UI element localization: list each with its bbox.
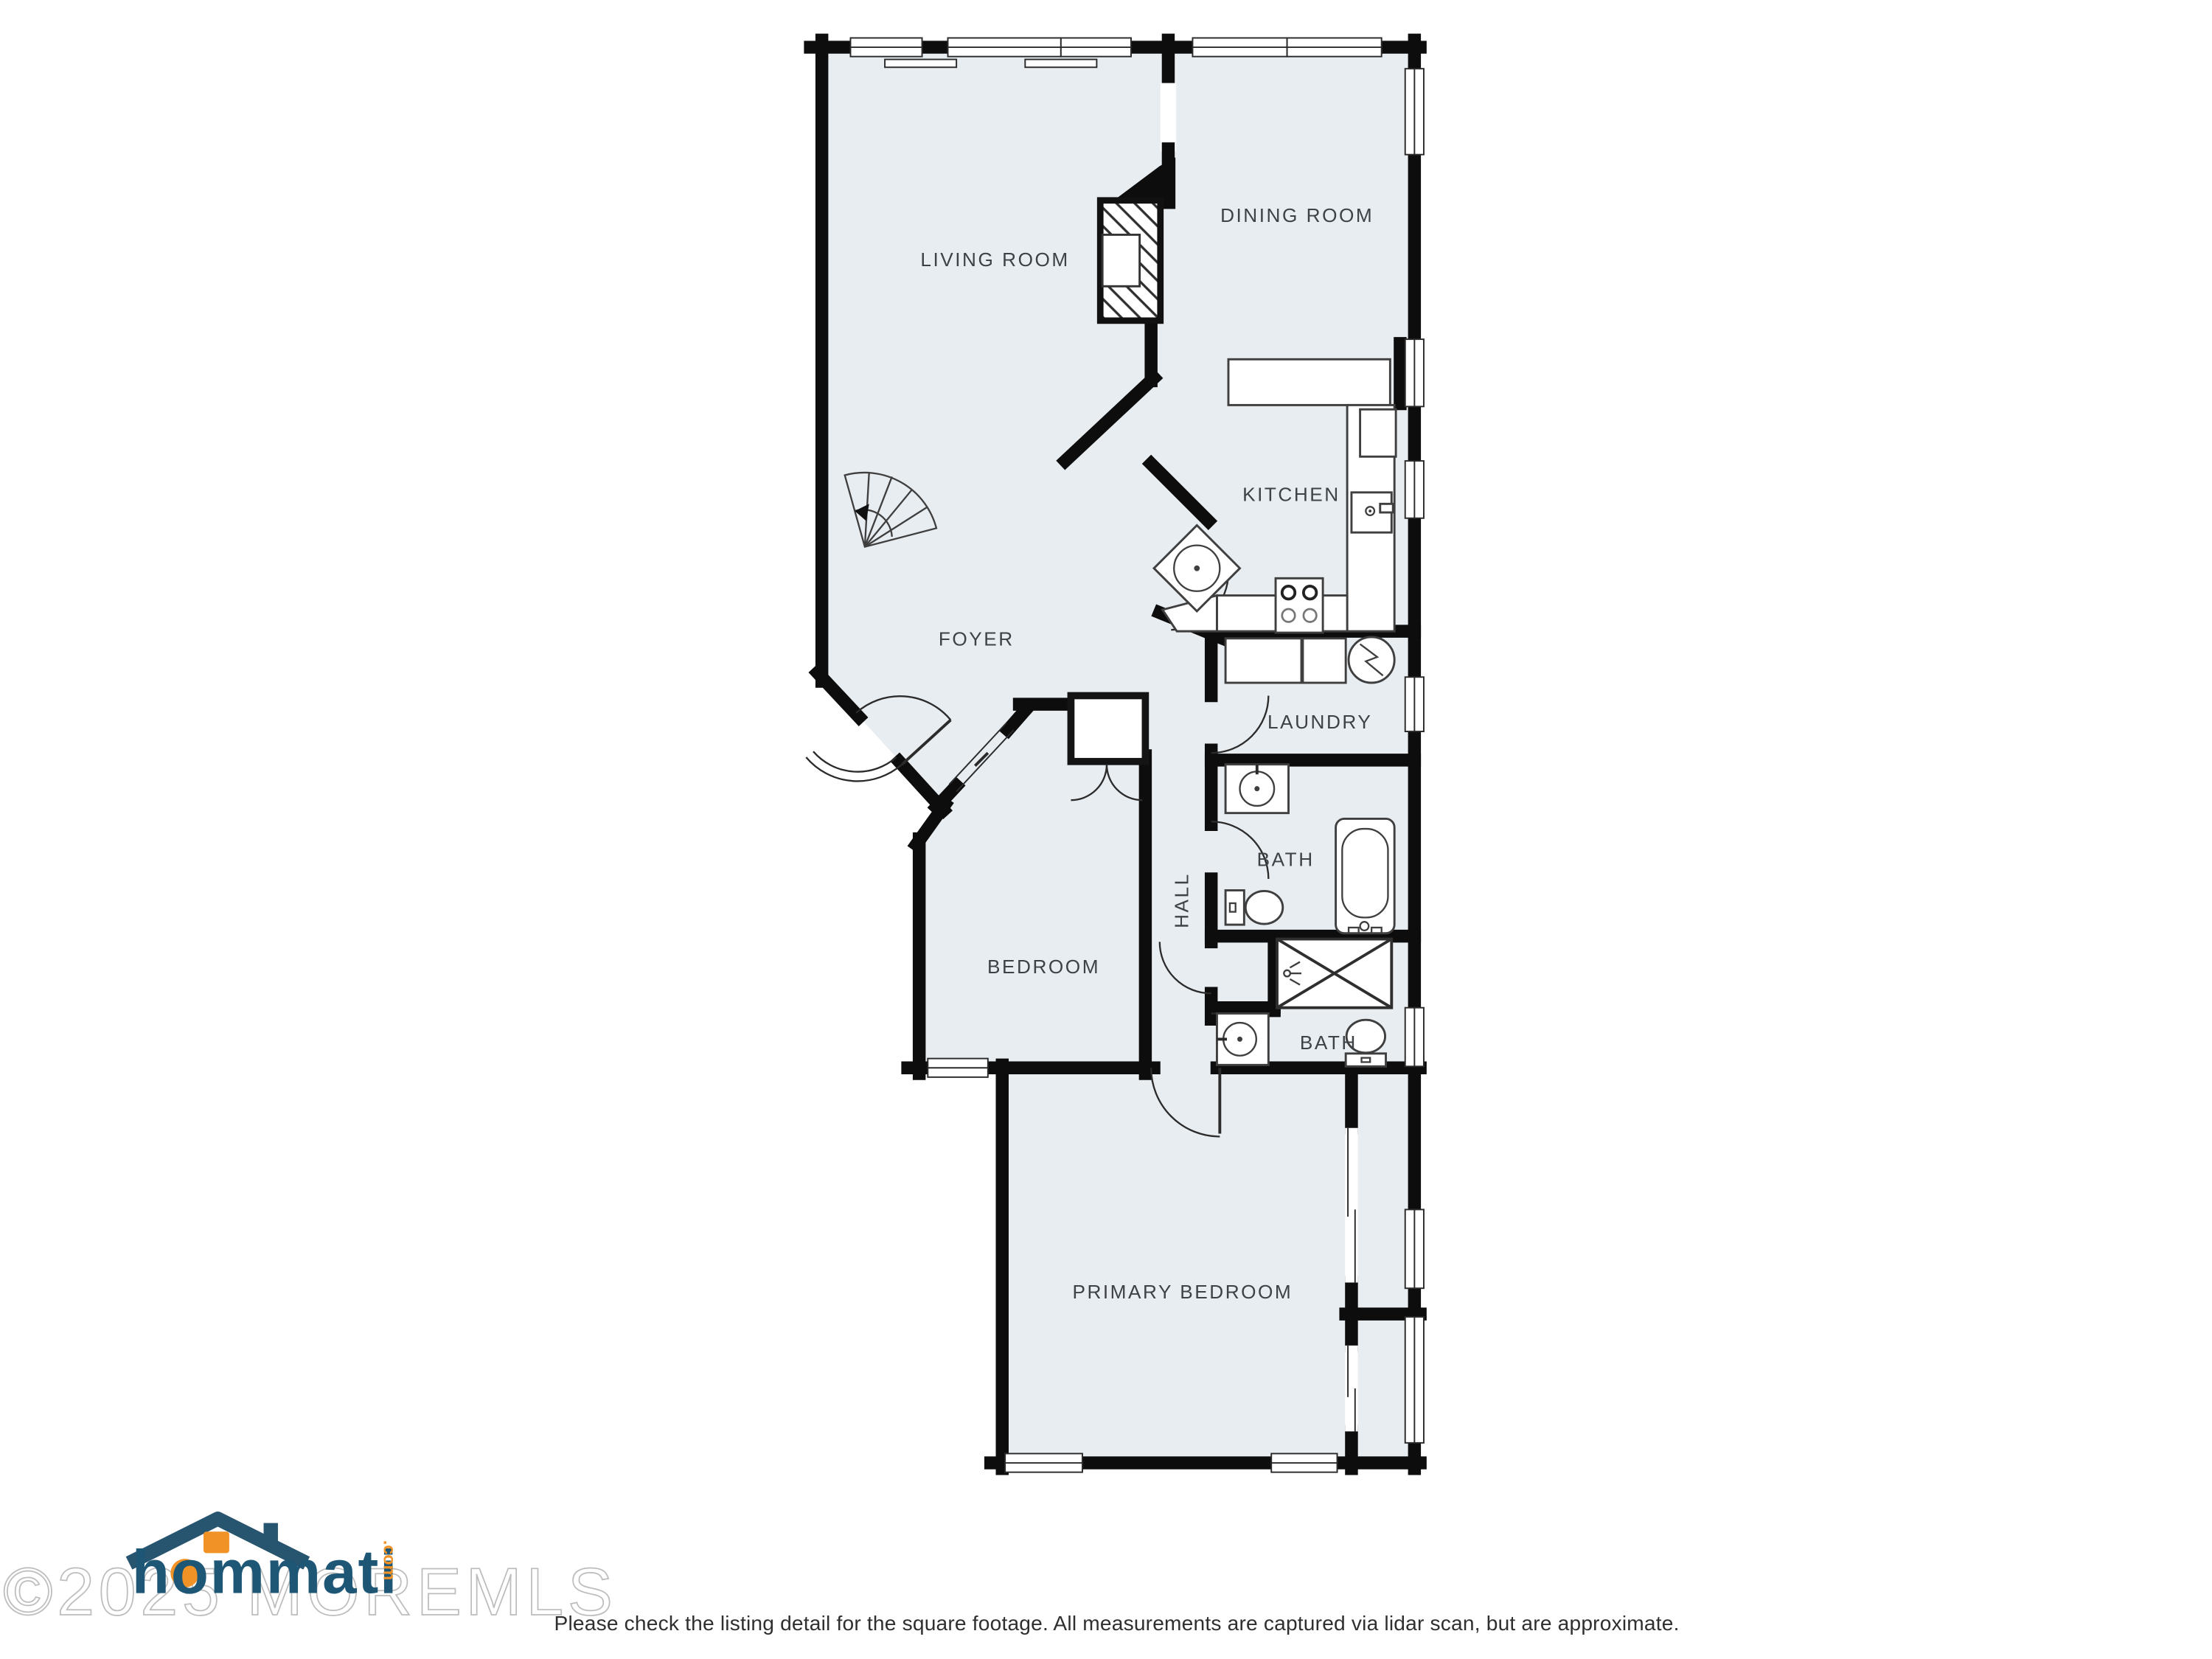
floor-plan: LIVING ROOM DINING ROOM KITCHEN FOYER LA… [0,0,2212,1659]
floor-plan-page: LIVING ROOM DINING ROOM KITCHEN FOYER LA… [0,0,2212,1659]
watermark: ©2025 MOREMLS hommati .com [3,1519,617,1630]
laundry-fixtures [1225,637,1394,683]
room-label-bath2: BATH [1300,1032,1357,1054]
room-label-bath1: BATH [1257,849,1315,871]
vanity-sink-icon [1217,1013,1268,1065]
fireplace-icon [1100,201,1161,321]
logo-text: hommati [132,1537,398,1607]
shower-icon [1277,939,1391,1008]
counter [1228,359,1390,405]
room-label-laundry: LAUNDRY [1267,711,1372,733]
toilet-icon [1225,891,1283,925]
bathtub-icon [1336,818,1395,933]
washer-icon [1225,639,1301,683]
room-label-hall: HALL [1171,872,1193,928]
kitchen-sink-icon [1352,493,1393,532]
dryer-icon [1303,639,1346,683]
room-label-dining: DINING ROOM [1220,204,1374,226]
room-label-living: LIVING ROOM [920,248,1069,271]
hommati-logo: hommati .com [129,1519,400,1607]
stove-icon [1276,578,1323,633]
room-label-foyer: FOYER [939,628,1015,650]
room-label-primary: PRIMARY BEDROOM [1072,1281,1293,1303]
room-label-bedroom: BEDROOM [987,956,1100,978]
sliding-closet-doors [1345,1128,1357,1432]
water-heater-icon [1349,637,1394,683]
vanity-sink-icon [1225,765,1288,813]
refrigerator-icon [1360,409,1397,456]
disclaimer-text: Please check the listing detail for the … [554,1612,1680,1635]
room-label-kitchen: KITCHEN [1242,483,1340,505]
logo-suffix: .com [380,1540,400,1580]
